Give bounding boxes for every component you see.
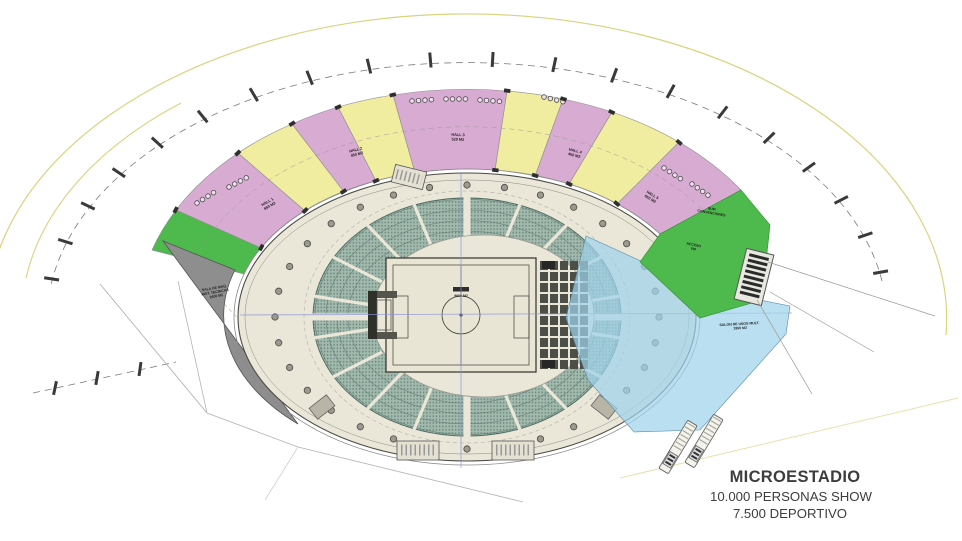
architectural-plan-page: SALA DE MAQ. INST. TECNICAS 1600 M2 HALL… xyxy=(0,0,962,541)
capacity-sport: 7.500 DEPORTIVO xyxy=(733,506,847,521)
speaker-box-top xyxy=(542,261,555,269)
stadium-floor-plan: SALA DE MAQ. INST. TECNICAS 1600 M2 HALL… xyxy=(0,0,962,541)
hall-3-label: HALL 3520 M2 xyxy=(451,133,465,142)
plan-title: MICROESTADIO xyxy=(730,468,861,486)
capacity-show: 10.000 PERSONAS SHOW xyxy=(710,489,873,504)
title-block: MICROESTADIO 10.000 PERSONAS SHOW 7.500 … xyxy=(710,468,873,521)
speaker-box-bottom xyxy=(542,360,555,368)
